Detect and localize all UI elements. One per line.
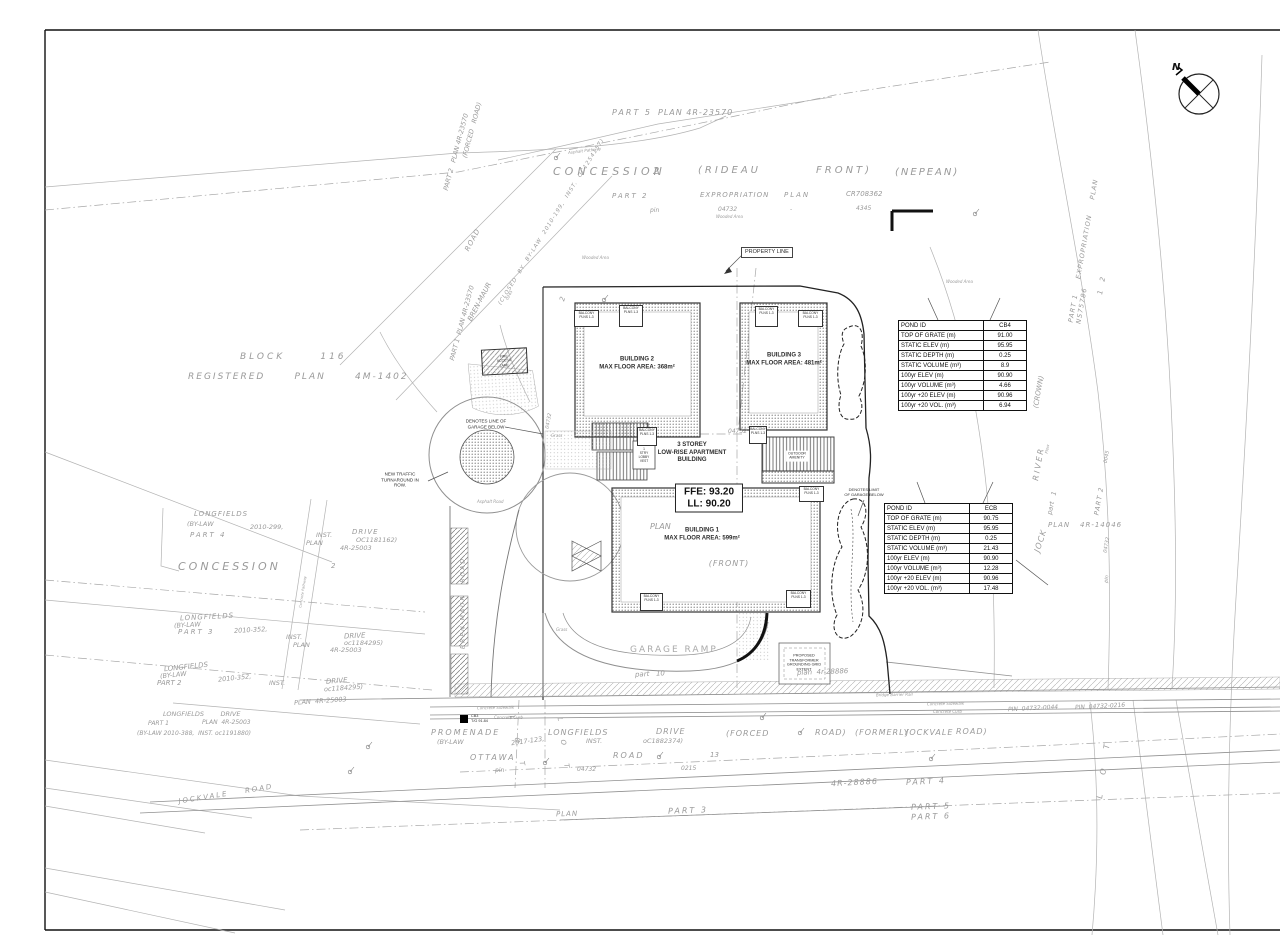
ffe-value: FFE: 93.20 xyxy=(684,487,734,499)
table-row: TOP OF GRATE (m)90.75 xyxy=(885,514,1013,524)
ffe-elevation-box: FFE: 93.20 LL: 90.20 xyxy=(675,484,743,513)
north-label: N xyxy=(1172,62,1180,73)
balcony-box: BALCONY PLNS 1-3 xyxy=(749,426,767,444)
balcony-box: BALCONY PLNS 1-3 xyxy=(798,310,823,327)
plan-linework xyxy=(0,0,1280,935)
table-row: STATIC DEPTH (m)0.25 xyxy=(899,351,1027,361)
north-arrow-icon xyxy=(1176,67,1219,114)
pond-table-ecb: POND IDECB TOP OF GRATE (m)90.75 STATIC … xyxy=(884,503,1013,594)
pond-table-cb4: POND IDCB4 TOP OF GRATE (m)91.00 STATIC … xyxy=(898,320,1027,411)
table-row: 100yr +20 VOL. (m³)6.94 xyxy=(899,401,1027,411)
table-row: 100yr +20 ELEV (m)90.96 xyxy=(899,391,1027,401)
turning-circle xyxy=(516,473,624,581)
structure-walls xyxy=(892,211,933,231)
balcony-box: BALCONY PLNS 1-3 xyxy=(619,305,643,327)
balcony-box: BALCONY PLNS 1-3 xyxy=(574,310,599,327)
site-plan xyxy=(348,67,1219,774)
infiltration-areas xyxy=(832,326,868,639)
site-plan-sheet: PART 5 PLAN 4R-23570 CONCESSION 2 (RIDEA… xyxy=(0,0,1280,935)
table-row: 100yr ELEV (m)90.90 xyxy=(885,554,1013,564)
table-row: STATIC ELEV (m)95.95 xyxy=(885,524,1013,534)
table-row: 100yr ELEV (m)90.90 xyxy=(899,371,1027,381)
centerlines xyxy=(45,62,1280,830)
balcony-box: BALCONY PLNS 1-3 xyxy=(799,486,824,502)
balcony-box: BALCONY PLNS 1-3 xyxy=(637,427,657,446)
balcony-box: BALCONY PLNS 1-3 xyxy=(755,306,778,327)
table-row: POND IDECB xyxy=(885,504,1013,514)
balcony-box: BALCONY PLNS 1-3 xyxy=(786,590,811,608)
fire-access-lane xyxy=(467,347,538,416)
table-row: STATIC VOLUME (m³)21.43 xyxy=(885,544,1013,554)
outdoor-amenity-deck xyxy=(762,437,834,471)
cb3-catchbasin xyxy=(460,715,468,723)
table-row: STATIC VOLUME (m³)8.9 xyxy=(899,361,1027,371)
table-row: 100yr +20 ELEV (m)90.96 xyxy=(885,574,1013,584)
table-row: 100yr +20 VOL. (m³)17.48 xyxy=(885,584,1013,594)
table-row: STATIC DEPTH (m)0.25 xyxy=(885,534,1013,544)
survey-lines xyxy=(45,30,1262,935)
table-row: STATIC ELEV (m)95.95 xyxy=(899,341,1027,351)
entrance-walk xyxy=(545,431,611,469)
balcony-box: BALCONY PLNS 1-3 xyxy=(640,593,663,611)
roundabout-island xyxy=(460,430,514,484)
table-row: POND IDCB4 xyxy=(899,321,1027,331)
table-row: 100yr VOLUME (m³)4.66 xyxy=(899,381,1027,391)
table-row: TOP OF GRATE (m)91.00 xyxy=(899,331,1027,341)
table-row: 100yr VOLUME (m³)12.28 xyxy=(885,564,1013,574)
ll-value: LL: 90.20 xyxy=(684,498,734,510)
sheet-border xyxy=(45,30,1280,930)
transformer-box xyxy=(779,643,830,684)
